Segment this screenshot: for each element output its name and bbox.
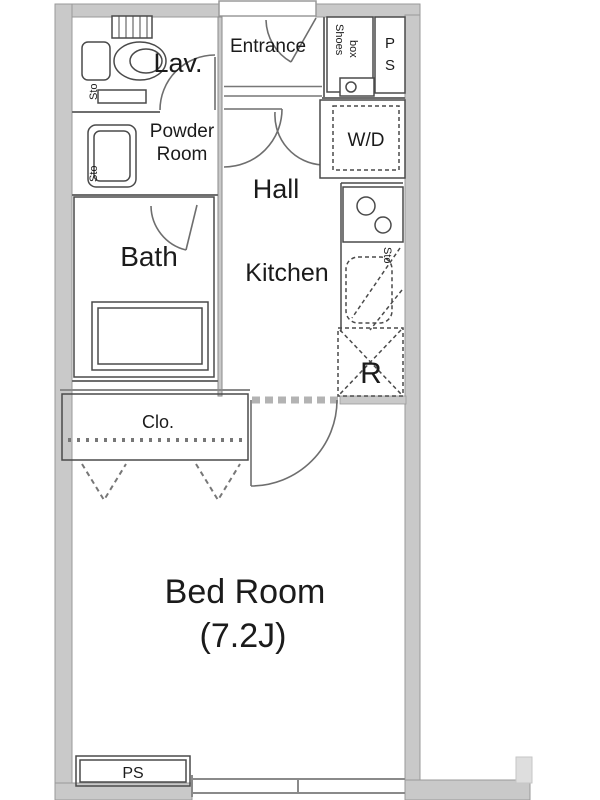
powder-door-arc bbox=[224, 109, 282, 167]
bathtub-icon bbox=[92, 302, 208, 370]
faucet-box-icon bbox=[340, 78, 374, 96]
label-ps-top-1: P bbox=[385, 35, 395, 52]
bath-door-leaf bbox=[186, 205, 197, 250]
closet-chevron bbox=[196, 464, 240, 500]
burner-icon bbox=[357, 197, 375, 215]
pipe-shaft-top bbox=[375, 17, 405, 93]
room-label-bath: Bath bbox=[120, 241, 178, 272]
doors bbox=[224, 18, 337, 486]
wall-center-vertical bbox=[218, 17, 222, 396]
bathtub-inner bbox=[98, 308, 202, 364]
wall-right bbox=[405, 15, 420, 800]
wall-bottom-right-stub bbox=[516, 757, 532, 783]
label-shoes-2: box bbox=[347, 40, 359, 58]
wall-top-left bbox=[55, 4, 220, 17]
wall-left bbox=[55, 4, 72, 800]
room-label-bedroom-2: (7.2J) bbox=[200, 617, 287, 655]
label-ps-bottom: PS bbox=[122, 765, 143, 782]
room-label-closet: Clo. bbox=[142, 412, 174, 432]
wall-top-right bbox=[316, 4, 420, 17]
label-ps-top-2: S bbox=[385, 57, 395, 74]
label-fridge: R bbox=[360, 357, 382, 390]
stove-icon bbox=[343, 187, 403, 242]
room-label-powder-2: Room bbox=[157, 144, 208, 165]
label-sto-kitchen: Sto bbox=[381, 247, 393, 264]
room-label-bedroom-1: Bed Room bbox=[165, 573, 326, 611]
room-label-kitchen: Kitchen bbox=[245, 259, 328, 287]
bedroom-door-arc bbox=[251, 400, 337, 486]
toilet-counter-icon bbox=[98, 90, 146, 103]
label-shoes-1: Shoes bbox=[333, 24, 345, 56]
floor-plan-page: Lav. Entrance Powder Room Hall Bath Kitc… bbox=[0, 0, 600, 800]
shelf-icon bbox=[112, 16, 152, 38]
burner-icon bbox=[375, 217, 391, 233]
room-label-entrance: Entrance bbox=[230, 36, 306, 57]
room-label-lav: Lav. bbox=[153, 48, 202, 78]
wall-bottom-right bbox=[405, 780, 530, 800]
wd-door-arc bbox=[275, 112, 322, 165]
floor-plan-svg: Lav. Entrance Powder Room Hall Bath Kitc… bbox=[0, 0, 600, 800]
entrance-door-recess bbox=[219, 1, 316, 16]
label-wd: W/D bbox=[348, 130, 385, 151]
closet-chevron bbox=[82, 464, 126, 500]
closet bbox=[62, 394, 248, 500]
room-label-hall: Hall bbox=[253, 174, 300, 204]
toilet-tank-icon bbox=[82, 42, 110, 80]
wall-bedroom-top-solid bbox=[340, 396, 406, 404]
sink-icon bbox=[346, 257, 392, 323]
room-label-powder-1: Powder bbox=[150, 121, 215, 142]
counter-hatch-line bbox=[370, 290, 402, 330]
bathroom bbox=[74, 197, 214, 377]
label-sto-powder: Sto bbox=[88, 165, 100, 182]
label-sto-lav: Sto bbox=[88, 83, 100, 100]
